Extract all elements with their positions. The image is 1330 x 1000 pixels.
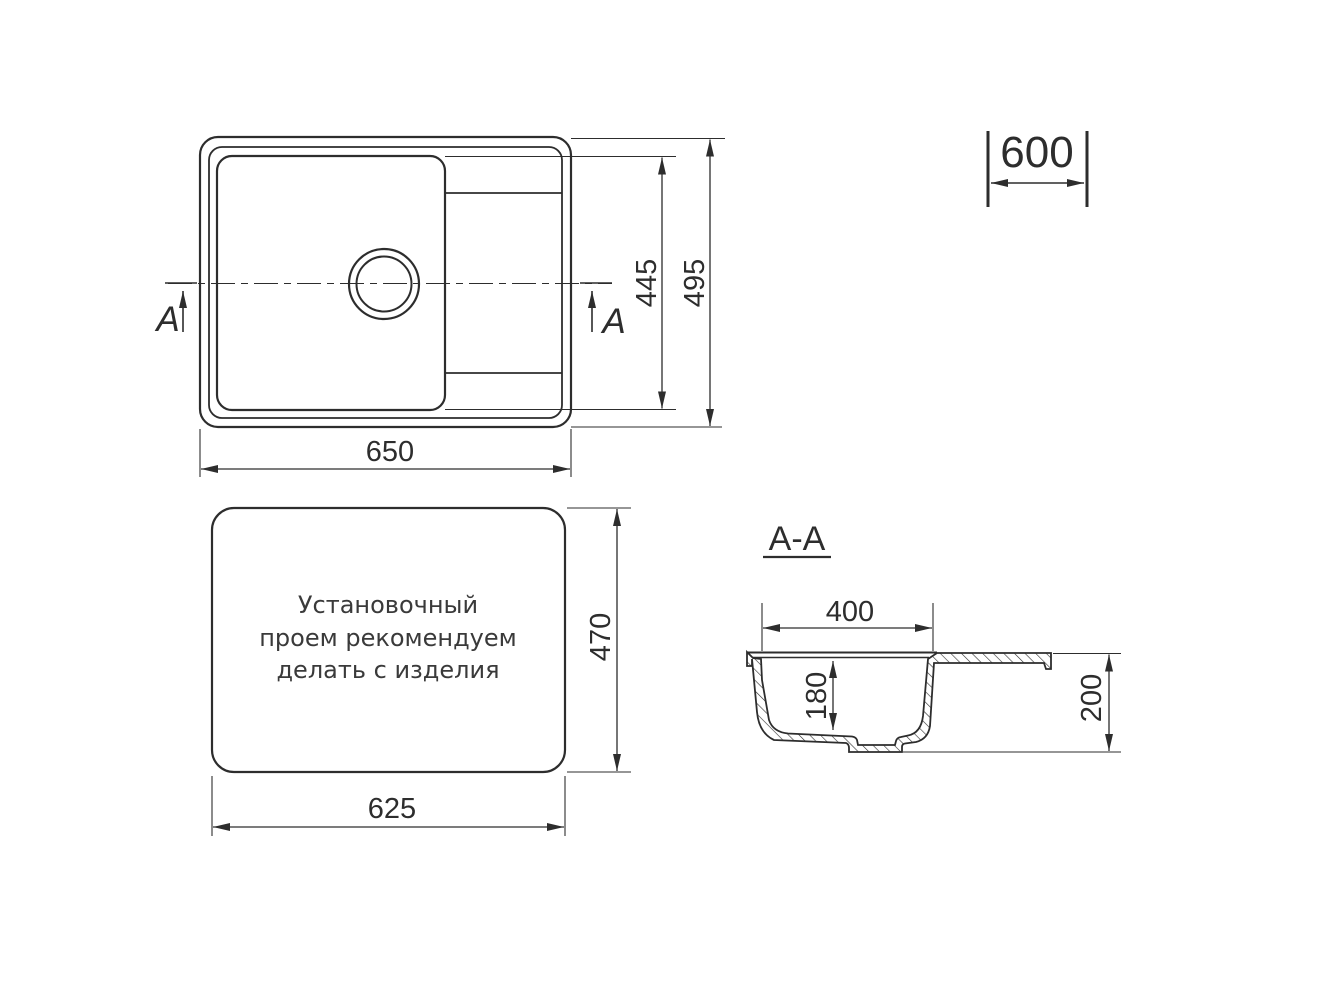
sink-dimension-drawing: A A 650 445 495 <box>0 0 1330 1000</box>
note-line-1: Установочный <box>298 591 478 619</box>
dim-470: 470 <box>567 508 631 772</box>
sink-outer-edge <box>200 137 571 427</box>
sink-rim-edge <box>209 147 562 418</box>
dim-200: 200 <box>903 654 1121 753</box>
dim-650-value: 650 <box>366 436 414 468</box>
dim-200-value: 200 <box>1076 674 1108 722</box>
dim-445-value: 445 <box>631 259 663 307</box>
note-line-2: проем рекомендуем <box>259 624 517 652</box>
section-material <box>747 652 1051 752</box>
dim-180-value: 180 <box>801 672 833 720</box>
section-cut-left: A <box>154 283 197 339</box>
section-title: A-A <box>769 520 826 558</box>
cabinet-width-dim: 600 <box>988 128 1087 207</box>
dim-400-value: 400 <box>826 596 874 628</box>
section-label-right: A <box>600 302 625 341</box>
section-label-left: A <box>154 300 179 339</box>
section-cut-right: A <box>580 283 626 341</box>
dim-470-value: 470 <box>585 613 617 661</box>
top-view: A A 650 445 495 <box>154 137 725 477</box>
dim-400: 400 <box>762 596 933 651</box>
dim-650: 650 <box>200 429 571 477</box>
technical-drawing: A A 650 445 495 <box>0 0 1330 1000</box>
section-view: A-A 400 180 200 <box>747 520 1121 752</box>
cabinet-dim-value: 600 <box>1000 128 1073 177</box>
dim-495-value: 495 <box>679 259 711 307</box>
note-line-3: делать с изделия <box>276 656 499 684</box>
dim-180: 180 <box>801 661 833 730</box>
dim-625: 625 <box>212 776 565 836</box>
dim-625-value: 625 <box>368 793 416 825</box>
cutout-view: Установочный проем рекомендуем делать с … <box>212 508 631 836</box>
